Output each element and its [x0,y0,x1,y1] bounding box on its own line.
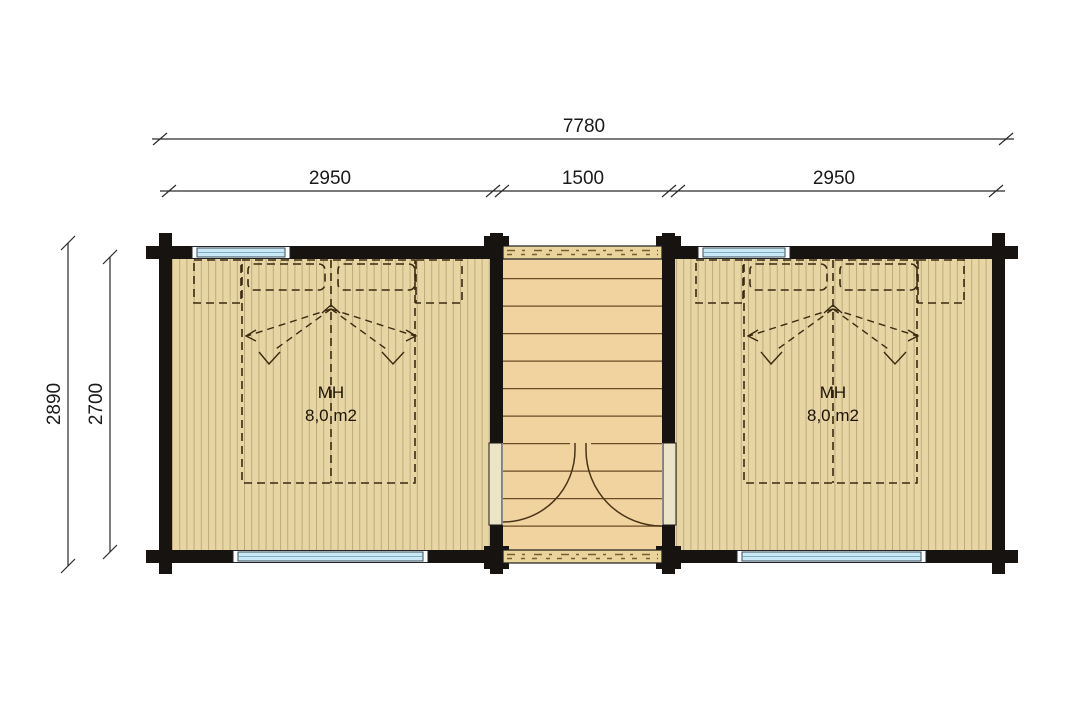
window-top-left [192,247,290,259]
partition-left [490,233,503,443]
room-right-area: 8,0 m2 [807,406,859,425]
wall-right [992,233,1005,574]
door-leaf-right [663,443,676,525]
porch-floor [503,259,662,550]
door-leaf-left [489,443,502,525]
room-left-label: MH [318,383,344,402]
dim-segment-middle: 1500 [562,168,604,189]
porch-front-step [503,550,662,563]
dim-segment-right: 2950 [813,168,855,189]
room-left-area: 8,0 m2 [305,406,357,425]
porch-top-beam [503,246,662,259]
dim-inner-depth: 2700 [86,383,107,425]
room-right-label: MH [820,383,846,402]
partition-right [662,233,675,443]
wall-left [159,233,172,574]
floor-plan-page: 7780 2950 1500 2950 2890 2700 [0,0,1080,720]
dim-segment-left: 2950 [309,168,351,189]
window-bottom-right [737,551,926,563]
floor-plan-drawing: 7780 2950 1500 2950 2890 2700 [0,0,1080,720]
dim-total-width: 7780 [563,116,605,137]
window-top-right [698,247,790,259]
window-bottom-left [233,551,428,563]
dim-outer-depth: 2890 [44,383,65,425]
